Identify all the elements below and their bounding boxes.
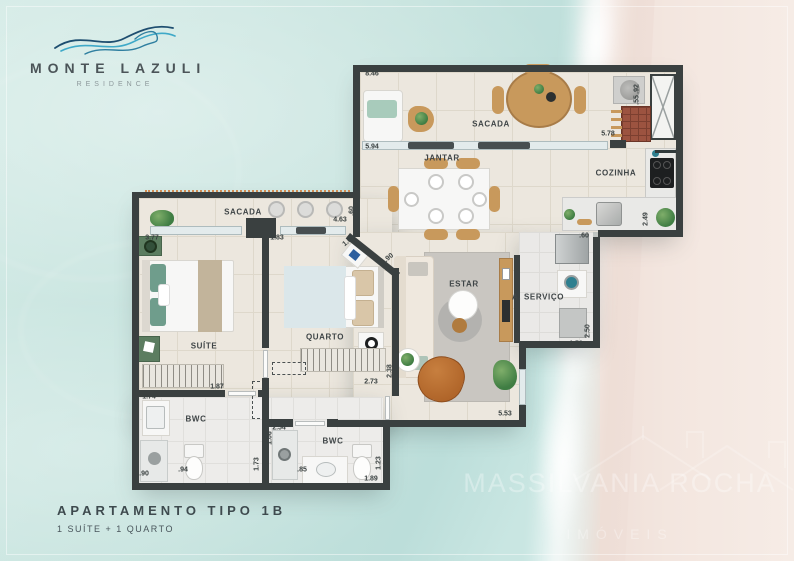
dimension-label: .94	[178, 467, 188, 474]
wall	[598, 230, 683, 237]
wall	[519, 341, 600, 348]
bedroom-door	[385, 396, 390, 420]
suite-door	[263, 350, 268, 378]
balcony-chair	[492, 86, 504, 114]
skewer	[611, 110, 622, 113]
slider-frame	[478, 142, 530, 149]
apartment-type-subtitle: 1 SUÍTE + 1 QUARTO	[57, 524, 286, 534]
skewer	[611, 126, 622, 129]
place-setting	[458, 208, 474, 224]
bwc2-door	[295, 421, 325, 426]
dimension-label: 5.78	[601, 131, 615, 138]
dimension-label: 1.87	[210, 384, 224, 391]
bedroom-headboard	[378, 266, 384, 328]
dining-chair	[424, 229, 448, 240]
dimension-label: 1.43	[355, 75, 362, 89]
dimension-label: 1.74	[142, 394, 156, 401]
dimension-label: 3.77	[145, 235, 159, 242]
duct-shaft	[650, 74, 676, 140]
slider-frame	[408, 142, 454, 149]
slider-frame	[296, 227, 326, 234]
kitchen-sink	[596, 202, 622, 226]
watermark-house-icon	[555, 418, 794, 528]
dimension-label: .60	[349, 206, 356, 216]
room-label-jantar: JANTAR	[424, 154, 459, 163]
side-table-plant	[415, 112, 428, 125]
bwc1-sink	[146, 406, 165, 429]
dimension-label: 1.00	[133, 399, 140, 413]
place-setting	[428, 208, 444, 224]
wall	[132, 483, 390, 490]
dining-chair	[388, 186, 399, 212]
wall	[132, 192, 139, 490]
place-setting	[428, 174, 444, 190]
room-label-quarto: QUARTO	[306, 333, 344, 342]
optional-cabinet	[272, 362, 306, 375]
bwc2-showerhead	[278, 448, 291, 461]
washer-door	[564, 275, 579, 290]
dining-chair	[489, 186, 500, 212]
living-window	[519, 369, 526, 405]
room-label-sacada-top: SACADA	[472, 120, 510, 129]
suite-window	[150, 226, 242, 235]
dimension-label: 2.38	[387, 364, 394, 378]
dimension-label: 1.06	[267, 431, 274, 445]
room-label-bwc-suite: BWC	[186, 415, 207, 424]
wall	[383, 420, 390, 490]
laundry-cabinet	[559, 308, 587, 338]
bedroom-pillow-white	[344, 276, 356, 320]
dimension-label: 4.63	[333, 217, 347, 224]
wood-tray	[452, 318, 467, 333]
wall	[338, 420, 526, 427]
dimension-label: .60	[579, 233, 589, 240]
wall	[353, 65, 683, 72]
dimension-label: 2.50	[585, 324, 592, 338]
bwc2-sink	[316, 462, 336, 477]
dimension-label: 2.04	[264, 388, 271, 402]
wall	[132, 192, 355, 198]
counter-edge	[655, 150, 676, 153]
skewer	[611, 118, 622, 121]
bedroom-wardrobe	[300, 348, 386, 372]
dimension-label: 1.00	[354, 129, 361, 143]
kitchen-corner-plant	[656, 208, 675, 227]
dimension-label: 1.83	[270, 235, 284, 242]
side-plant	[401, 353, 414, 366]
dimension-label: .90	[139, 471, 149, 478]
balcony-plant	[150, 210, 174, 227]
logo-title: MONTE LAZULI	[30, 60, 200, 76]
room-label-suite: SUÍTE	[191, 342, 218, 351]
room-label-servico: A. SERVIÇO	[512, 293, 564, 302]
cutting-board	[577, 219, 592, 225]
balcony-pouf	[297, 201, 314, 218]
dimension-label: 2.54	[272, 425, 286, 432]
balcony-chair	[574, 86, 586, 114]
wall	[593, 237, 600, 348]
balcony-round-table	[506, 70, 572, 128]
dining-chair	[456, 229, 480, 240]
bedroom-duvet	[284, 266, 346, 328]
dimension-label: 5.94	[365, 144, 379, 151]
room-label-estar: ESTAR	[449, 280, 479, 289]
bwc1-door	[228, 391, 256, 396]
dimension-label: .55	[634, 95, 641, 105]
coffee-table	[448, 290, 478, 320]
dimension-label: 5.53	[498, 411, 512, 418]
suite-bed-throw	[198, 260, 222, 332]
apartment-type-title: APARTAMENTO TIPO 1B	[57, 503, 286, 518]
dimension-label: 8.46	[365, 71, 379, 78]
dimension-label: .92	[634, 84, 641, 94]
dimension-label: 1.89	[364, 476, 378, 483]
room-label-bwc-social: BWC	[323, 437, 344, 446]
dimension-label: 3.15	[263, 241, 270, 255]
dimension-label: .85	[297, 467, 307, 474]
logo-subtitle: RESIDENCE	[30, 81, 200, 88]
floorplan-canvas: MASSILVANIA ROCHA IMÓVEIS MONTE LAZULI R…	[0, 0, 794, 561]
table-plant	[534, 84, 544, 94]
monstera-plant	[493, 360, 517, 390]
room-label-cozinha: COZINHA	[596, 169, 637, 178]
logo-waves-icon	[51, 18, 179, 58]
dimension-label: 1.73	[254, 457, 261, 471]
barbecue-grill	[621, 106, 651, 142]
tv	[502, 300, 510, 322]
dimension-label: 1.23	[376, 456, 383, 470]
logo: MONTE LAZULI RESIDENCE	[30, 18, 200, 88]
counter-plant	[564, 209, 575, 220]
room-label-sacada-left: SACADA	[224, 208, 262, 217]
balcony-pouf	[326, 201, 343, 218]
wall	[327, 419, 338, 427]
console-frame	[502, 268, 510, 280]
suite-pillow-white	[158, 284, 170, 306]
nightstand-decor	[144, 240, 157, 253]
dimension-label: 2.49	[643, 212, 650, 226]
place-setting	[472, 192, 487, 207]
place-setting	[458, 174, 474, 190]
balcony-pouf	[268, 201, 285, 218]
place-setting	[404, 192, 419, 207]
bench-paper	[143, 341, 155, 353]
wall	[676, 65, 683, 237]
dimension-label: 1.50	[569, 341, 583, 348]
sofa-pillow	[408, 262, 428, 276]
table-decor	[546, 92, 556, 102]
dimension-label: 2.73	[364, 379, 378, 386]
wall	[610, 140, 626, 148]
suite-headboard	[142, 260, 150, 332]
wall	[519, 348, 526, 369]
cooktop	[650, 158, 674, 188]
plan-caption: APARTAMENTO TIPO 1B 1 SUÍTE + 1 QUARTO	[57, 503, 286, 534]
daybed-pillow	[367, 100, 397, 118]
